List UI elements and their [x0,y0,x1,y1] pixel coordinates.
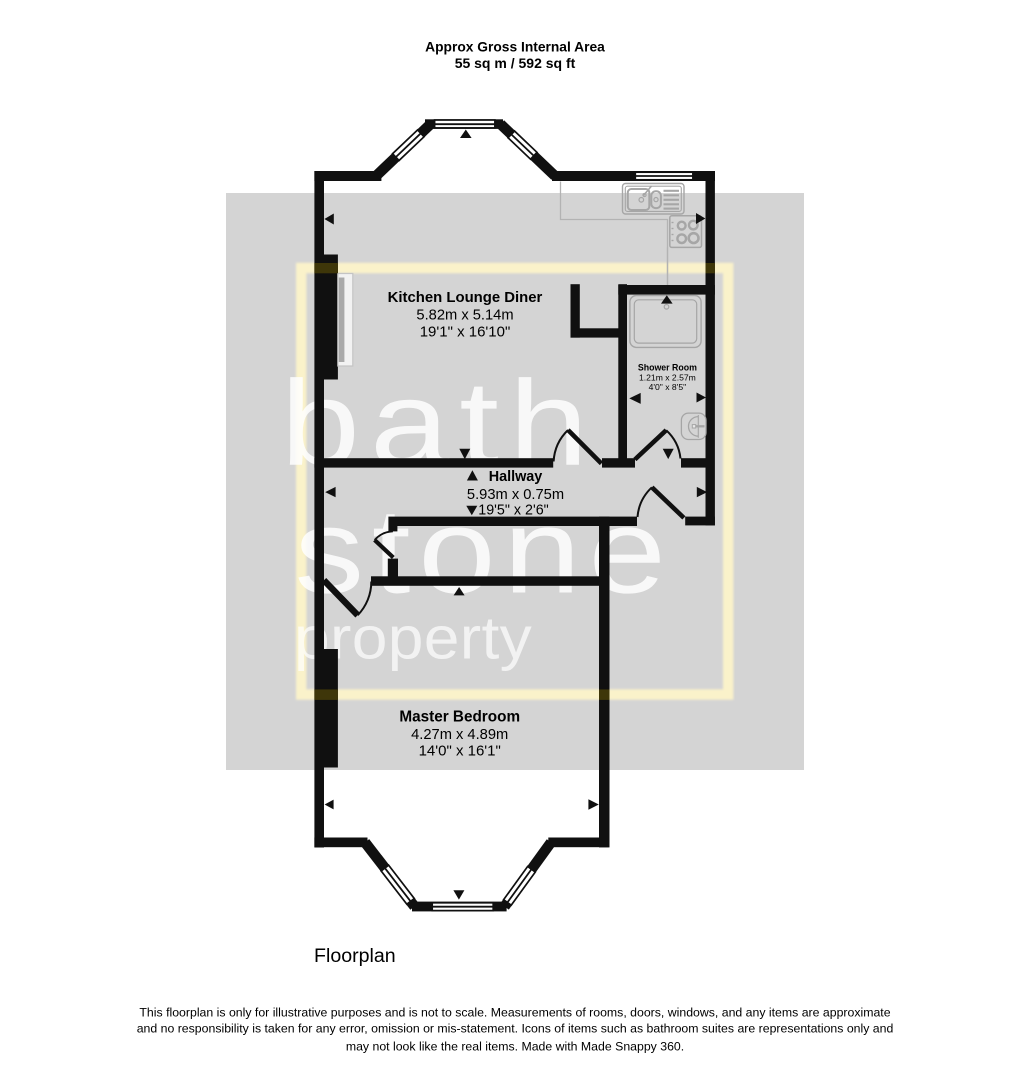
svg-text:4'0" x 8'5": 4'0" x 8'5" [649,382,687,392]
svg-text:Master Bedroom: Master Bedroom [399,708,520,725]
svg-text:Approx Gross Internal Area: Approx Gross Internal Area [425,40,605,55]
svg-text:19'5" x 2'6": 19'5" x 2'6" [478,503,548,519]
svg-text:Kitchen Lounge Diner: Kitchen Lounge Diner [388,290,543,306]
svg-text:19'1" x 16'10": 19'1" x 16'10" [420,324,511,341]
svg-text:14'0" x 16'1": 14'0" x 16'1" [419,742,501,759]
svg-text:may not look like the real ite: may not look like the real items. Made w… [346,1040,684,1054]
svg-text:Floorplan: Floorplan [314,945,396,967]
svg-text:5.82m x 5.14m: 5.82m x 5.14m [416,307,513,323]
svg-text:Hallway: Hallway [489,469,543,485]
svg-text:This floorplan is only for ill: This floorplan is only for illustrative … [139,1005,890,1019]
svg-text:55 sq m / 592 sq ft: 55 sq m / 592 sq ft [455,55,576,71]
svg-text:5.93m x 0.75m: 5.93m x 0.75m [467,487,564,503]
svg-text:Shower Room: Shower Room [638,362,697,372]
svg-text:4.27m x 4.89m: 4.27m x 4.89m [411,727,508,743]
svg-text:and no responsibility is taken: and no responsibility is taken for any e… [137,1021,894,1035]
svg-text:1.21m x 2.57m: 1.21m x 2.57m [639,372,696,382]
